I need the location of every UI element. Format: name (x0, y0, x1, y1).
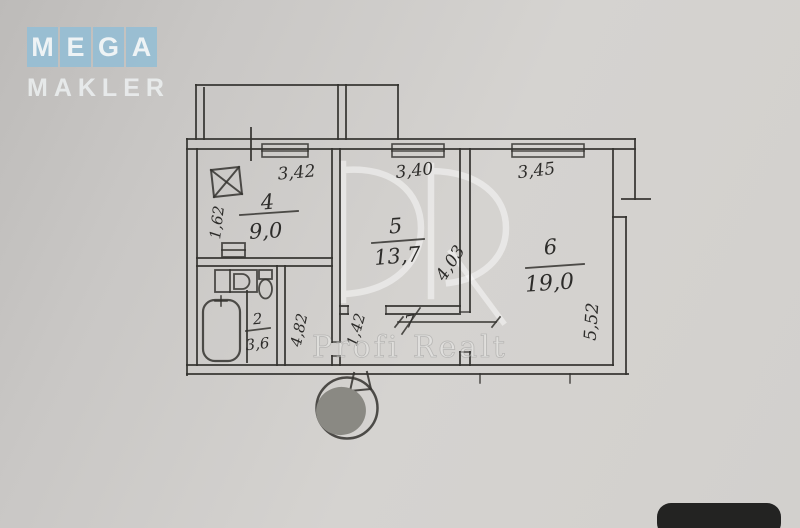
floorplan-drawing: 3,42 4 9,0 1,62 3,40 5 13,7 4,03 3,45 6 … (0, 0, 800, 528)
toilet-icon (259, 270, 272, 299)
room-6-side-dim: 5,52 (581, 302, 604, 341)
room-4-number: 4 (259, 189, 275, 214)
room-5-area: 13,7 (373, 242, 422, 270)
blackout-blob (657, 503, 781, 528)
room-5-top-dim: 3,40 (395, 159, 435, 183)
room-2-number: 2 (251, 310, 263, 329)
hall-length-dim: 4,82 (287, 312, 312, 349)
room-2-area: 3,6 (245, 334, 271, 354)
stove-icon (222, 243, 245, 257)
bathtub-icon (203, 296, 240, 361)
room-6-area: 19,0 (524, 269, 575, 297)
room-4-area: 9,0 (248, 218, 283, 244)
room-6-top-dim: 3,45 (516, 159, 556, 183)
scanned-floorplan-image: M E G A MAKLER (0, 0, 800, 528)
stamp-circle (311, 378, 378, 441)
vent-shaft-icon (211, 167, 242, 197)
room-6-number: 6 (543, 234, 558, 259)
room-4-side-dim: 1,62 (206, 205, 228, 240)
watermark-pr-letters (343, 164, 506, 322)
room-5-number: 5 (388, 214, 403, 239)
room-4-top-dim: 3,42 (277, 161, 316, 184)
sink-counter-icon (215, 270, 257, 292)
windows (262, 144, 584, 157)
watermark-text: Profi Realt (312, 330, 508, 365)
